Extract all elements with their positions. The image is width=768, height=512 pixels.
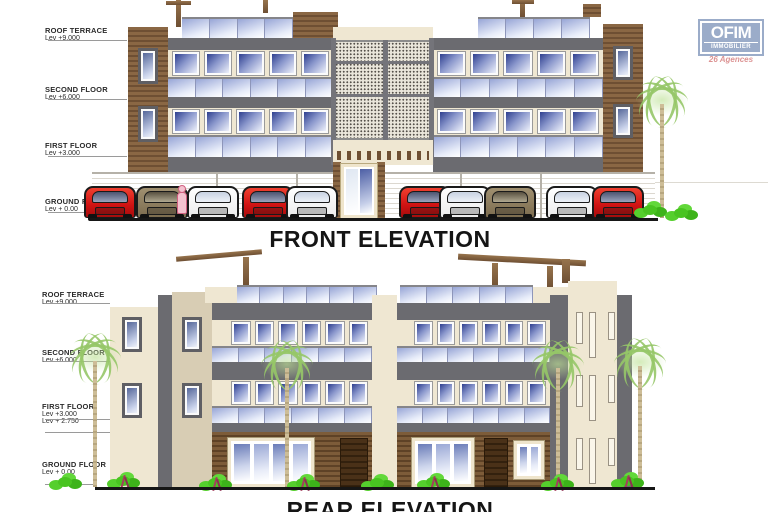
window xyxy=(182,383,202,418)
railing-pane xyxy=(480,287,507,303)
window xyxy=(415,382,432,404)
window xyxy=(350,322,368,344)
slit-window xyxy=(576,312,583,344)
door-glass xyxy=(530,446,539,474)
timber-door xyxy=(340,438,368,487)
railing-pane xyxy=(474,408,500,423)
window xyxy=(122,383,142,418)
slit-window xyxy=(589,438,596,484)
railing-pane xyxy=(307,287,330,303)
window xyxy=(232,322,250,344)
slit-window xyxy=(589,312,596,358)
railing-pane xyxy=(292,408,319,423)
glass-door-set xyxy=(412,438,474,487)
door-glass xyxy=(253,443,271,482)
railing-pane xyxy=(237,287,260,303)
railing-pane xyxy=(212,348,239,362)
railing-pane xyxy=(330,287,353,303)
window xyxy=(528,322,545,344)
window xyxy=(415,322,432,344)
window xyxy=(460,322,477,344)
balcony-railing xyxy=(397,406,550,423)
door-glass xyxy=(292,443,310,482)
pergola-beam xyxy=(176,249,262,261)
ofim-logo-subtitle: IMMOBILIER xyxy=(704,42,758,50)
railing-pane xyxy=(397,408,423,423)
window xyxy=(460,382,477,404)
railing-pane xyxy=(499,348,525,362)
ground-line xyxy=(95,487,655,490)
window xyxy=(256,322,274,344)
window xyxy=(483,322,500,344)
roof-glass-railing xyxy=(400,285,533,303)
pergola-post xyxy=(547,266,553,289)
window xyxy=(483,382,500,404)
railing-pane xyxy=(260,287,283,303)
window xyxy=(326,322,344,344)
floor-band xyxy=(397,423,550,432)
railing-pane xyxy=(345,408,372,423)
window xyxy=(350,382,368,404)
window xyxy=(506,322,523,344)
window xyxy=(438,382,455,404)
railing-pane xyxy=(212,408,239,423)
railing-pane xyxy=(474,348,500,362)
bush xyxy=(58,477,72,487)
pergola-post xyxy=(243,257,249,287)
window xyxy=(303,322,321,344)
door-glass xyxy=(519,446,528,474)
palm-trunk xyxy=(556,368,560,487)
balcony-railing xyxy=(212,406,372,423)
slit-window xyxy=(576,438,583,470)
ground-window xyxy=(514,441,544,479)
window xyxy=(232,382,250,404)
architectural-drawing-sheet: ROOF TERRACE Lev +9.000 SECOND FLOOR Lev… xyxy=(0,0,768,512)
timber-door xyxy=(484,438,508,487)
ofim-logo-text: OFIM xyxy=(704,24,758,41)
parapet xyxy=(212,303,372,320)
railing-pane xyxy=(448,408,474,423)
balcony-railing xyxy=(397,346,550,362)
door-glass xyxy=(435,443,451,482)
dimension-line xyxy=(45,432,110,433)
railing-pane xyxy=(239,408,266,423)
dimension-line xyxy=(45,303,110,304)
railing-pane xyxy=(453,287,480,303)
ofim-logo-tagline: 26 Agences xyxy=(700,54,762,65)
roof-block xyxy=(205,287,237,303)
window xyxy=(122,317,142,352)
railing-pane xyxy=(448,348,474,362)
door-glass xyxy=(233,443,251,482)
railing-pane xyxy=(423,348,449,362)
window xyxy=(256,382,274,404)
window-row xyxy=(397,320,550,346)
railing-pane xyxy=(284,287,307,303)
facade-band xyxy=(158,295,172,488)
railing-pane xyxy=(400,287,427,303)
door-glass xyxy=(453,443,469,482)
palm-trunk xyxy=(93,361,97,487)
slit-window xyxy=(608,438,615,466)
window xyxy=(182,317,202,352)
center-band xyxy=(372,295,397,488)
railing-pane xyxy=(345,348,372,362)
window xyxy=(506,382,523,404)
railing-pane xyxy=(506,287,533,303)
slit-window xyxy=(589,375,596,421)
facade-band xyxy=(617,295,632,488)
slit-window xyxy=(608,312,615,340)
level-label-first-floor: FIRST FLOOR Lev +3.000 Lev + 2.750 xyxy=(42,402,94,425)
parapet xyxy=(397,303,550,320)
dimension-line xyxy=(45,419,110,420)
railing-pane xyxy=(423,408,449,423)
railing-pane xyxy=(499,408,525,423)
railing-pane xyxy=(525,408,551,423)
window xyxy=(326,382,344,404)
slit-window xyxy=(608,375,615,403)
floor-band xyxy=(212,423,372,432)
railing-pane xyxy=(397,348,423,362)
window xyxy=(303,382,321,404)
railing-pane xyxy=(319,408,346,423)
railing-pane xyxy=(427,287,454,303)
rear-elevation: ROOF TERRACE Lev +9.000 SECOND FLOOR Lev… xyxy=(0,0,768,256)
railing-pane xyxy=(319,348,346,362)
window xyxy=(438,322,455,344)
palm-trunk xyxy=(285,368,289,487)
rear-elevation-title: REAR ELEVATION xyxy=(240,497,540,512)
palm-trunk xyxy=(638,366,642,487)
ofim-logo: OFIM IMMOBILIER 26 Agences xyxy=(700,21,762,65)
ofim-logo-box: OFIM IMMOBILIER xyxy=(700,21,762,54)
roof-glass-railing xyxy=(237,285,377,303)
floor-band xyxy=(397,362,550,380)
pergola-post xyxy=(562,259,570,283)
window xyxy=(528,382,545,404)
window-row xyxy=(397,380,550,406)
